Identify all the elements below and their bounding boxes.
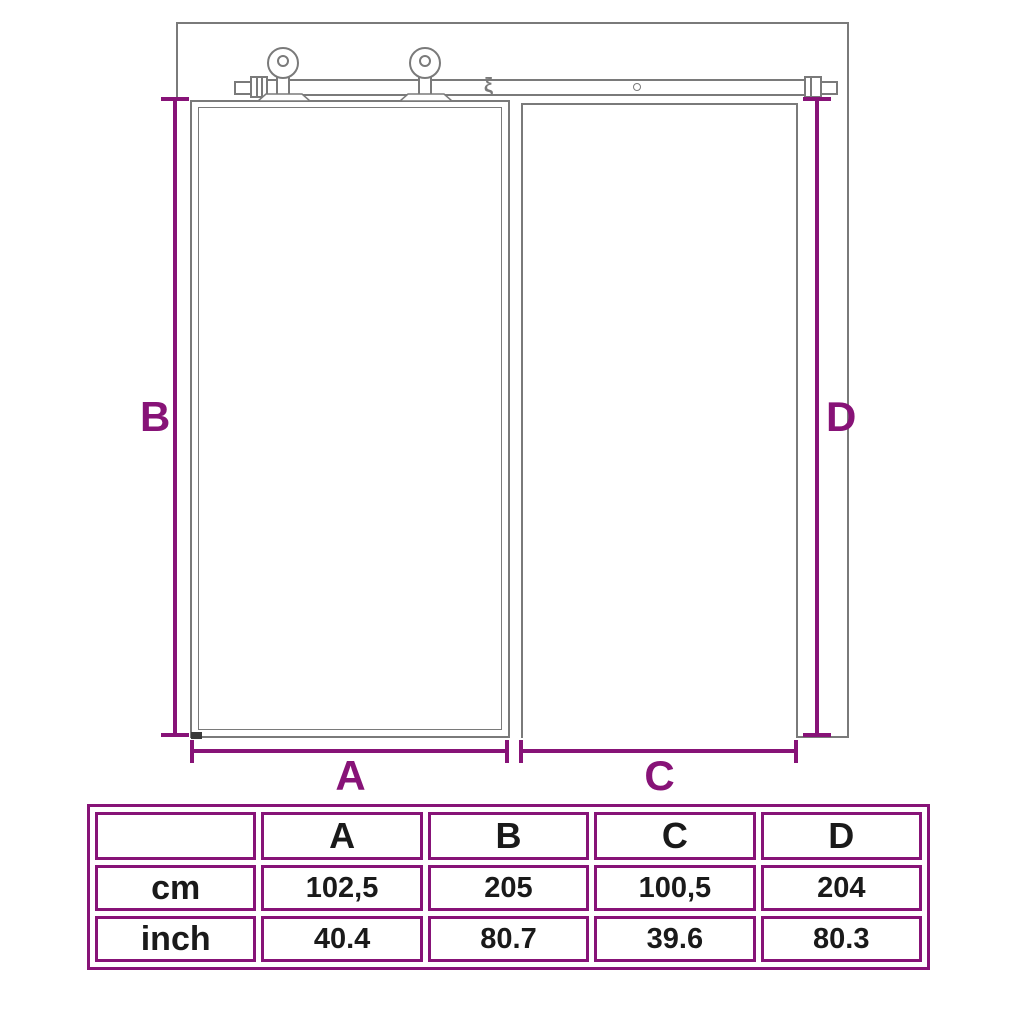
table-row-inch: inch 40.4 80.7 39.6 80.3 (95, 916, 922, 962)
cell-inch-a: 40.4 (261, 916, 422, 962)
dimensions-table: A B C D cm 102,5 205 100,5 204 inch 40.4… (87, 804, 930, 970)
floor-guide (191, 732, 202, 739)
dim-label-a: A (192, 755, 509, 797)
rail-end-cap-right-ridge (810, 76, 812, 98)
cell-inch-d: 80.3 (761, 916, 922, 962)
table-header-b: B (428, 812, 589, 860)
rail-screw-hole-icon (633, 83, 641, 91)
cell-cm-a: 102,5 (261, 865, 422, 911)
rail-end-cap-right-shaft (820, 81, 838, 95)
cell-inch-c: 39.6 (594, 916, 755, 962)
table-header-d: D (761, 812, 922, 860)
cell-cm-d: 204 (761, 865, 922, 911)
roller-hub-right (419, 55, 431, 67)
dim-tick-d-top (803, 97, 831, 101)
table-row-cm: cm 102,5 205 100,5 204 (95, 865, 922, 911)
dim-line-d (815, 99, 819, 735)
dim-label-d: D (826, 396, 856, 438)
door-panel-inner-frame (198, 107, 502, 730)
dim-line-b (173, 98, 177, 735)
wall-outline-top (176, 22, 849, 24)
wall-outline-left (176, 22, 178, 99)
dim-tick-b-bottom (161, 733, 189, 737)
cell-cm-b: 205 (428, 865, 589, 911)
dim-tick-b-top (161, 97, 189, 101)
dim-label-c: C (521, 755, 798, 797)
rail-break-icon: ξ (484, 76, 493, 96)
sliding-rail-bar (252, 79, 806, 96)
sliding-door-dimension-diagram: ξ B D A C A B C D (0, 0, 1024, 1024)
row-label-cm: cm (95, 865, 256, 911)
dimensions-table-wrap: A B C D cm 102,5 205 100,5 204 inch 40.4… (87, 804, 930, 970)
cell-cm-c: 100,5 (594, 865, 755, 911)
roller-hub-left (277, 55, 289, 67)
table-header-c: C (594, 812, 755, 860)
roller-mount-plate-right (399, 93, 453, 102)
table-header-a: A (261, 812, 422, 860)
dim-label-b: B (140, 396, 170, 438)
table-corner-cell (95, 812, 256, 860)
roller-mount-plate-left (257, 93, 311, 102)
table-header-row: A B C D (95, 812, 922, 860)
row-label-inch: inch (95, 916, 256, 962)
wall-outline-right (847, 22, 849, 738)
cell-inch-b: 80.7 (428, 916, 589, 962)
dim-tick-d-bottom (803, 733, 831, 737)
doorway-opening (521, 103, 798, 738)
